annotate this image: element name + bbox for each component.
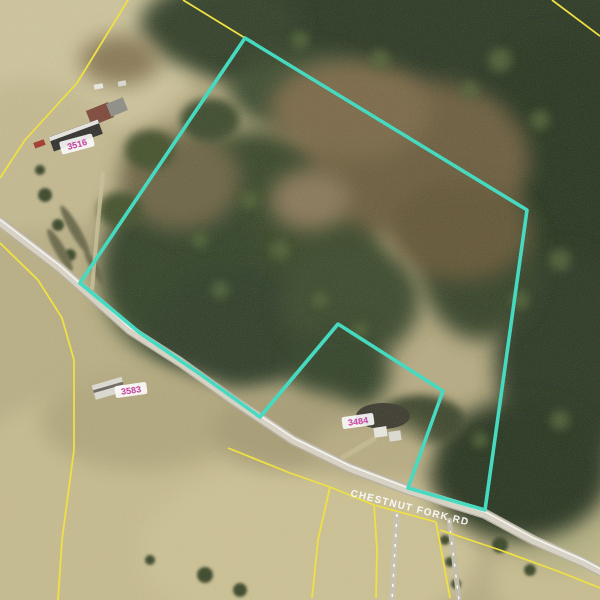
aerial-map[interactable]: 3516 3583 3484 CHESTNUT FORK RD <box>0 0 600 600</box>
photo-grain-overlay <box>0 0 600 600</box>
